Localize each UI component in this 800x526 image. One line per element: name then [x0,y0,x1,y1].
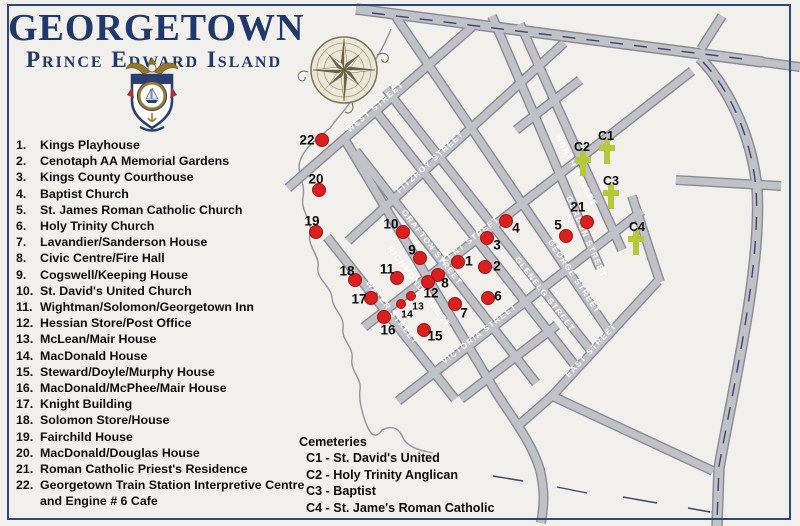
site-dot-number: 17 [351,292,366,307]
site-dot-icon [482,292,495,305]
map-dot-5: 5 [554,218,572,243]
legend-item-number: 12. [16,315,40,331]
legend-item-number: 13. [16,331,40,347]
legend-item-12: 12.Hessian Store/Post Office [16,315,308,331]
site-dot-number: 20 [308,172,323,187]
legend-item-20: 20.MacDonald/Douglas House [16,445,308,461]
cemeteries-legend: Cemeteries C1 - St. David's UnitedC2 - H… [299,434,559,516]
site-dot-number: 10 [383,217,398,232]
site-dot-icon [479,261,492,274]
legend-item-label: Hessian Store/Post Office [40,315,192,331]
legend-item-label: St. James Roman Catholic Church [40,202,242,218]
legend-item-label: Cogswell/Keeping House [40,267,188,283]
site-dot-number: 16 [380,323,396,338]
legend-item-label: Kings Playhouse [40,137,140,153]
legend-item-15: 15.Steward/Doyle/Murphy House [16,364,308,380]
legend-item-11: 11.Wightman/Solomon/Georgetown Inn [16,299,308,315]
legend-item-label: Kings County Courthouse [40,169,194,185]
cross-icon [575,157,591,163]
legend-item-number: 5. [16,202,40,218]
legend-item-number: 10. [16,283,40,299]
site-dot-number: 12 [423,286,438,301]
site-dot-number: 5 [554,218,562,233]
site-dot-number: 7 [460,306,468,321]
site-dot-icon [397,300,406,309]
site-dot-icon [407,292,416,301]
legend-item-label: Roman Catholic Priest's Residence [40,461,247,477]
legend-item-18: 18.Solomon Store/House [16,412,308,428]
legend-item-number: 11. [16,299,40,315]
legend-item-label: McLean/Mair House [40,331,156,347]
legend-item-number: 16. [16,380,40,396]
legend-item-number: 15. [16,364,40,380]
site-dot-number: 18 [339,264,355,279]
cemetery-cross-label: C1 [598,129,614,143]
legend-item-number: 18. [16,412,40,428]
site-dot-number: 14 [401,309,413,321]
legend-item-5: 5.St. James Roman Catholic Church [16,202,308,218]
site-dot-icon [452,256,465,269]
legend-item-number: 9. [16,267,40,283]
legend-item-number: 21. [16,461,40,477]
site-dot-icon [316,134,329,147]
site-dot-number: 11 [380,262,395,277]
site-dot-icon [500,215,513,228]
legend-item-16: 16.MacDonald/McPhee/Mair House [16,380,308,396]
legend-item-7: 7.Lavandier/Sanderson House [16,234,308,250]
cross-icon [580,151,586,176]
legend-item-label: St. David's United Church [40,283,192,299]
cemeteries-items: C1 - St. David's UnitedC2 - Holy Trinity… [299,450,559,516]
postcard-map: GEORGETOWN Prince Edward Island 1.Kings … [0,0,800,526]
crest-shield [127,75,177,131]
legend-item-4: 4.Baptist Church [16,186,308,202]
map-dot-17: 17 [351,292,377,307]
site-dot-number: 21 [570,200,586,215]
legend-item-label: Baptist Church [40,186,129,202]
legend-item-label: Cenotaph AA Memorial Gardens [40,153,229,169]
site-dot-number: 1 [465,254,473,269]
legend-item-label: MacDonald/Douglas House [40,445,200,461]
legend-item-2: 2.Cenotaph AA Memorial Gardens [16,153,308,169]
cemeteries-title: Cemeteries [299,434,559,450]
cemetery-item-3: C3 - Baptist [299,483,559,499]
cross-icon [603,190,619,196]
site-dot-number: 8 [441,276,449,291]
cemetery-cross-label: C3 [603,174,619,188]
cemetery-item-2: C2 - Holy Trinity Anglican [299,467,559,483]
legend-list: 1.Kings Playhouse2.Cenotaph AA Memorial … [16,137,308,510]
town-crest [121,57,183,133]
legend-item-14: 14.MacDonald House [16,348,308,364]
legend-item-label: Civic Centre/Fire Hall [40,250,165,266]
cemetery-cross-C1: C1 [598,129,615,164]
legend-item-22: 22.Georgetown Train Station Interpretive… [16,477,308,509]
site-dot-number: 15 [427,329,443,344]
site-dot-number: 3 [493,238,501,253]
map-dot-15: 15 [418,324,443,344]
site-dot-number: 9 [408,243,416,258]
legend-item-21: 21.Roman Catholic Priest's Residence [16,461,308,477]
legend-item-label: Solomon Store/House [40,412,169,428]
legend-item-number: 3. [16,169,40,185]
site-dot-icon [481,232,494,245]
legend-item-number: 8. [16,250,40,266]
cemetery-item-4: C4 - St. Jame's Roman Catholic [299,500,559,516]
site-dot-number: 4 [512,221,520,236]
legend-item-label: Georgetown Train Station Interpretive Ce… [40,477,308,509]
cemetery-cross-label: C2 [574,140,590,154]
site-dot-number: 6 [494,289,502,304]
site-dot-number: 2 [493,259,501,274]
legend-item-label: MacDonald House [40,348,147,364]
legend-item-label: Holy Trinity Church [40,218,154,234]
legend-item-label: Fairchild House [40,429,133,445]
legend-item-label: Lavandier/Sanderson House [40,234,207,250]
legend-item-3: 3.Kings County Courthouse [16,169,308,185]
map-dot-20: 20 [308,172,325,197]
legend-item-6: 6.Holy Trinity Church [16,218,308,234]
site-dot-number: 13 [412,301,424,313]
legend-item-number: 22. [16,477,40,509]
crest-eagle [126,58,178,74]
legend-item-number: 6. [16,218,40,234]
map-dot-18: 18 [339,264,361,287]
legend-item-number: 20. [16,445,40,461]
cemetery-cross-label: C4 [629,220,645,234]
site-dot-icon [581,216,594,229]
legend-item-8: 8.Civic Centre/Fire Hall [16,250,308,266]
legend-item-19: 19.Fairchild House [16,429,308,445]
legend-item-10: 10.St. David's United Church [16,283,308,299]
legend-item-number: 4. [16,186,40,202]
cemetery-item-1: C1 - St. David's United [299,450,559,466]
cemetery-cross-C4: C4 [628,220,645,255]
map-dot-6: 6 [482,289,503,305]
legend-item-1: 1.Kings Playhouse [16,137,308,153]
legend-item-number: 19. [16,429,40,445]
legend-item-9: 9.Cogswell/Keeping House [16,267,308,283]
legend-item-label: Wightman/Solomon/Georgetown Inn [40,299,254,315]
legend-item-13: 13.McLean/Mair House [16,331,308,347]
legend-item-label: MacDonald/McPhee/Mair House [40,380,227,396]
cross-icon [599,145,615,151]
page-title: GEORGETOWN [8,9,300,47]
legend-item-number: 17. [16,396,40,412]
legend-item-label: Steward/Doyle/Murphy House [40,364,215,380]
legend-item-17: 17.Knight Building [16,396,308,412]
cross-icon [628,236,644,242]
legend-item-number: 7. [16,234,40,250]
legend-item-number: 14. [16,348,40,364]
legend-item-label: Knight Building [40,396,132,412]
legend-item-number: 2. [16,153,40,169]
legend-item-number: 1. [16,137,40,153]
